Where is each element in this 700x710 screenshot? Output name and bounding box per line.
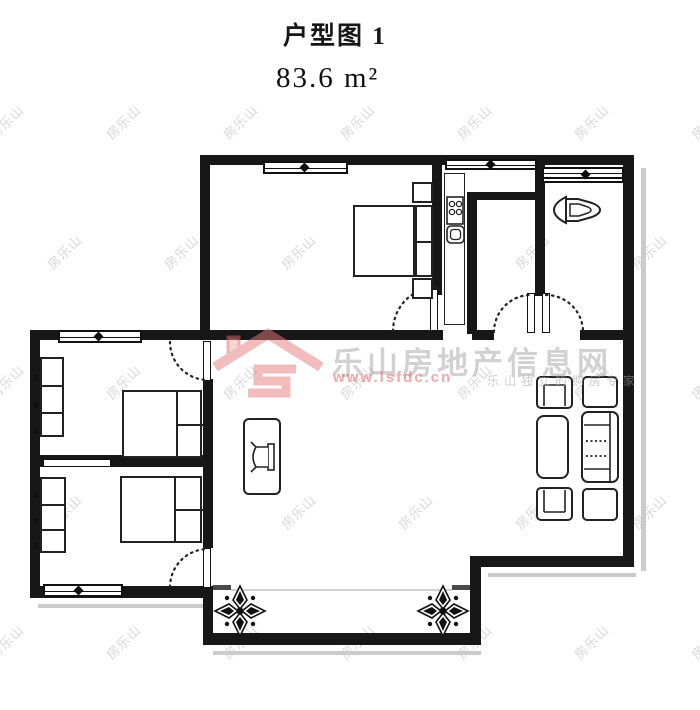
door-arc-icon (494, 295, 531, 332)
nightstand (412, 182, 433, 203)
wardrobe-handle (34, 543, 39, 549)
door-leaf (203, 548, 211, 588)
window-icon (43, 584, 123, 597)
page-title: 户型图 1 (283, 16, 387, 52)
wall (200, 155, 210, 340)
wardrobe-icon (40, 357, 64, 437)
wall-shadow (38, 604, 210, 608)
wardrobe-handle (34, 402, 39, 408)
balcony-boundary-line (231, 589, 452, 591)
wardrobe-handle (34, 375, 39, 381)
coffee-table-icon (536, 415, 569, 479)
wardrobe-handle (34, 492, 39, 498)
window-icon (445, 159, 537, 170)
door-arc-icon (546, 295, 583, 332)
wall (623, 155, 634, 567)
wall (467, 192, 545, 200)
floor-area-label: 83.6 m² (276, 62, 379, 95)
double-bed-icon (120, 476, 202, 543)
wall-shadow (213, 651, 481, 655)
double-bed-icon (122, 390, 202, 458)
wall-shadow (488, 573, 636, 577)
kitchen-counter (444, 173, 465, 325)
wall (432, 165, 442, 295)
wall (535, 165, 545, 296)
tv-cabinet-icon (243, 418, 281, 495)
wall-tick (452, 585, 470, 590)
wall-slot (43, 459, 111, 467)
wardrobe-icon (40, 477, 66, 553)
floor-plan (0, 0, 700, 710)
wall (203, 633, 481, 645)
wall (580, 330, 634, 340)
side-table-icon (582, 376, 618, 408)
door-leaf (203, 341, 211, 381)
wall (470, 556, 481, 645)
side-table-icon (582, 488, 618, 521)
wall-shadow (641, 168, 646, 571)
wall (467, 192, 477, 334)
nightstand (412, 278, 433, 299)
wardrobe-handle (34, 428, 39, 434)
bed-mattress (353, 205, 415, 277)
bed-pillows (415, 205, 433, 277)
door-leaf (527, 293, 535, 333)
wall-tick (213, 585, 231, 590)
flower-ornament-icon (215, 586, 265, 636)
window-icon (542, 167, 624, 183)
flower-ornament-icon (418, 586, 468, 636)
door-leaf (542, 293, 550, 333)
wall (472, 330, 494, 340)
window-icon (58, 330, 142, 343)
wall (470, 556, 634, 567)
wardrobe-handle (34, 518, 39, 524)
window-icon (263, 161, 348, 174)
